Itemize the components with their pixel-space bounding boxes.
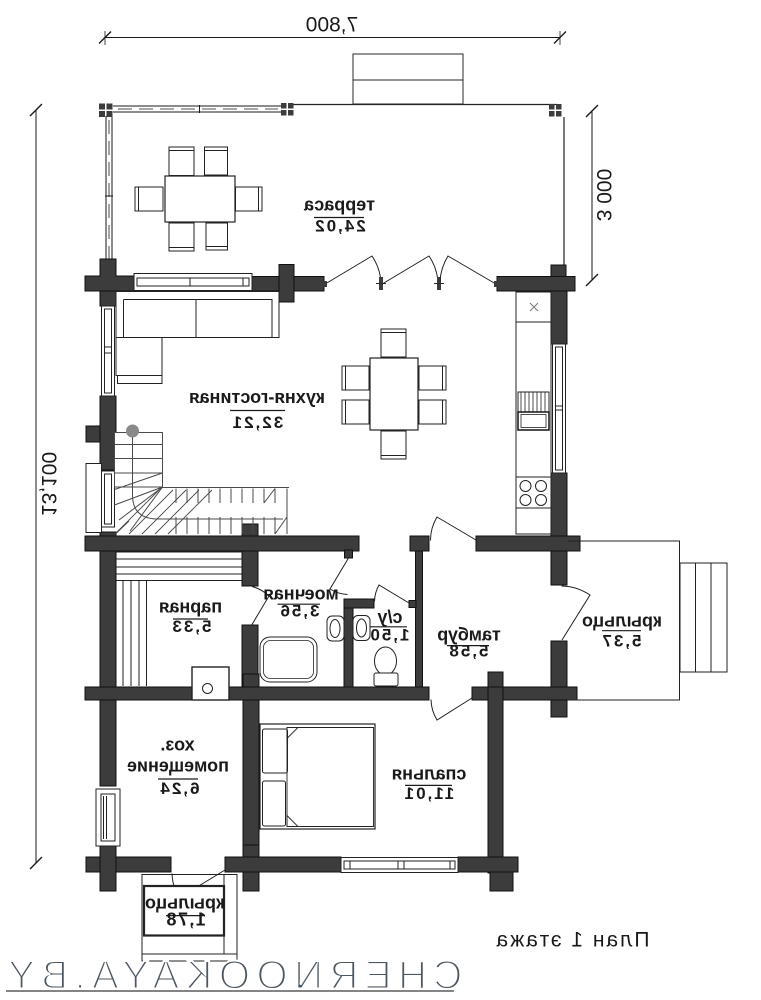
svg-text:5,58: 5,58 [447, 642, 488, 661]
svg-text:5,37: 5,37 [600, 632, 641, 651]
svg-text:6,24: 6,24 [158, 779, 199, 798]
svg-text:кухня-гостиная: кухня-гостиная [189, 387, 325, 407]
svg-text:24,02: 24,02 [313, 217, 366, 236]
svg-text:с/у: с/у [377, 607, 402, 627]
svg-text:3 000: 3 000 [592, 169, 615, 222]
svg-text:моечная: моечная [263, 584, 338, 604]
svg-text:помещение: помещение [127, 756, 229, 776]
svg-text:1,78: 1,78 [165, 910, 206, 930]
svg-text:13,100: 13,100 [37, 452, 60, 516]
svg-text:7,800: 7,800 [306, 14, 359, 37]
svg-text:3,56: 3,56 [278, 602, 319, 621]
svg-text:32,21: 32,21 [231, 413, 284, 432]
svg-text:5,33: 5,33 [170, 617, 211, 636]
svg-text:11,01: 11,01 [403, 784, 455, 803]
svg-text:хоз.: хоз. [160, 735, 194, 755]
svg-text:парная: парная [159, 597, 222, 617]
svg-text:1,50: 1,50 [368, 626, 409, 645]
svg-text:крыльцо: крыльцо [582, 611, 662, 631]
svg-text:спальня: спальня [392, 764, 467, 784]
svg-text:План 1 этажа: План 1 этажа [494, 929, 649, 952]
svg-text:терраса: терраса [303, 195, 375, 215]
